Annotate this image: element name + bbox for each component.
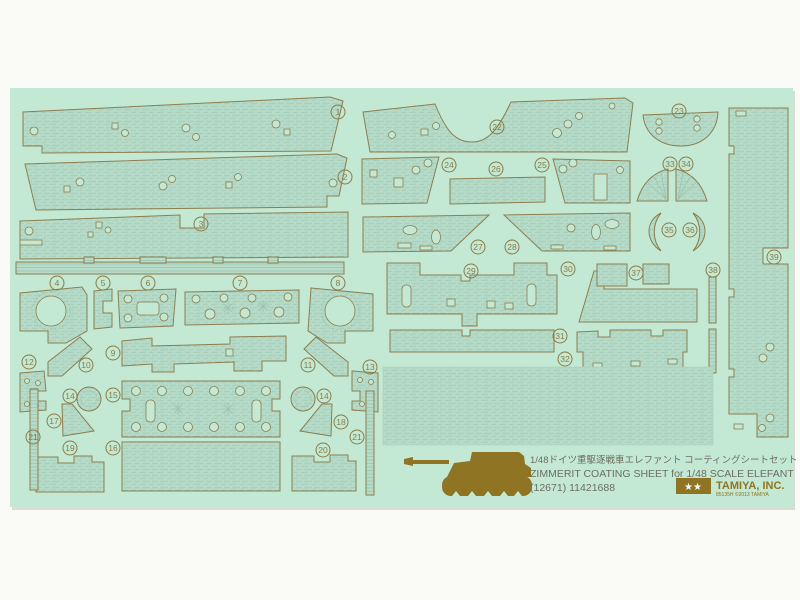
svg-text:35: 35 [664, 225, 674, 235]
svg-text:22: 22 [492, 122, 502, 132]
svg-text:32: 32 [560, 354, 570, 364]
logo-stars: ★★ [684, 482, 702, 493]
svg-text:8: 8 [336, 278, 341, 288]
piece-31 [390, 330, 554, 352]
swirl-decor [222, 302, 234, 314]
svg-text:5: 5 [101, 278, 106, 288]
svg-text:6: 6 [146, 278, 151, 288]
svg-text:17: 17 [49, 416, 59, 426]
svg-text:13: 13 [365, 362, 375, 372]
svg-text:18: 18 [336, 417, 346, 427]
svg-text:15: 15 [108, 390, 118, 400]
swirl-decor [257, 300, 269, 312]
piece-26 [450, 177, 545, 204]
svg-text:27: 27 [473, 242, 483, 252]
piece-21-right [366, 391, 374, 495]
svg-text:24: 24 [444, 160, 454, 170]
svg-text:19: 19 [65, 443, 75, 453]
footer-title-en: ZIMMERIT COATING SHEET for 1/48 SCALE EL… [530, 468, 794, 480]
piece-8-hole [325, 296, 355, 326]
svg-text:14: 14 [319, 391, 329, 401]
svg-text:33: 33 [665, 159, 675, 169]
brand-name: TAMIYA, INC. [716, 480, 784, 492]
svg-text:36: 36 [685, 225, 695, 235]
svg-text:21: 21 [28, 432, 38, 442]
svg-text:31: 31 [555, 331, 565, 341]
spare-texture-block [383, 367, 713, 445]
svg-text:11: 11 [304, 360, 313, 370]
svg-text:1: 1 [336, 107, 341, 117]
piece-9-hole [226, 349, 233, 356]
svg-text:29: 29 [466, 266, 476, 276]
svg-text:7: 7 [238, 278, 243, 288]
svg-text:34: 34 [681, 159, 691, 169]
svg-text:26: 26 [491, 164, 501, 174]
piece-38-a [709, 277, 716, 323]
piece-2 [25, 154, 347, 210]
svg-text:38: 38 [708, 265, 718, 275]
swirl-decor [172, 403, 184, 415]
piece-16 [122, 442, 280, 491]
svg-text:28: 28 [507, 242, 517, 252]
svg-text:21: 21 [352, 432, 362, 442]
footer-item-code: (12671) 11421688 [530, 482, 615, 494]
piece-38-b [709, 329, 716, 373]
svg-text:37: 37 [631, 268, 641, 278]
svg-text:10: 10 [81, 360, 91, 370]
svg-text:2: 2 [343, 172, 348, 182]
svg-text:39: 39 [769, 252, 779, 262]
tamiya-twin-star-logo: ★★ [676, 478, 711, 494]
piece-4-hole [36, 296, 66, 326]
svg-text:12: 12 [24, 357, 34, 367]
zimmerit-sheet-scan: 1234567891011121314151417182121191620222… [0, 0, 800, 600]
footer-title-jp: 1/48ドイツ重駆逐戦車エレファント コーティングシートセット [530, 454, 798, 466]
piece-37-b [643, 264, 669, 284]
scan-page: 1234567891011121314151417182121191620222… [0, 0, 800, 600]
brand-small-print: 85135H ©2013 TAMIYA [716, 491, 770, 498]
svg-text:4: 4 [55, 278, 60, 288]
svg-text:20: 20 [318, 445, 328, 455]
piece-39-column [729, 108, 788, 437]
svg-text:30: 30 [563, 264, 573, 274]
piece-37-a [597, 264, 627, 286]
svg-text:23: 23 [674, 106, 684, 116]
svg-text:3: 3 [199, 219, 204, 229]
swirl-decor [222, 403, 234, 415]
svg-text:9: 9 [111, 348, 116, 358]
svg-text:14: 14 [65, 391, 75, 401]
svg-text:16: 16 [108, 443, 118, 453]
svg-text:25: 25 [537, 160, 547, 170]
